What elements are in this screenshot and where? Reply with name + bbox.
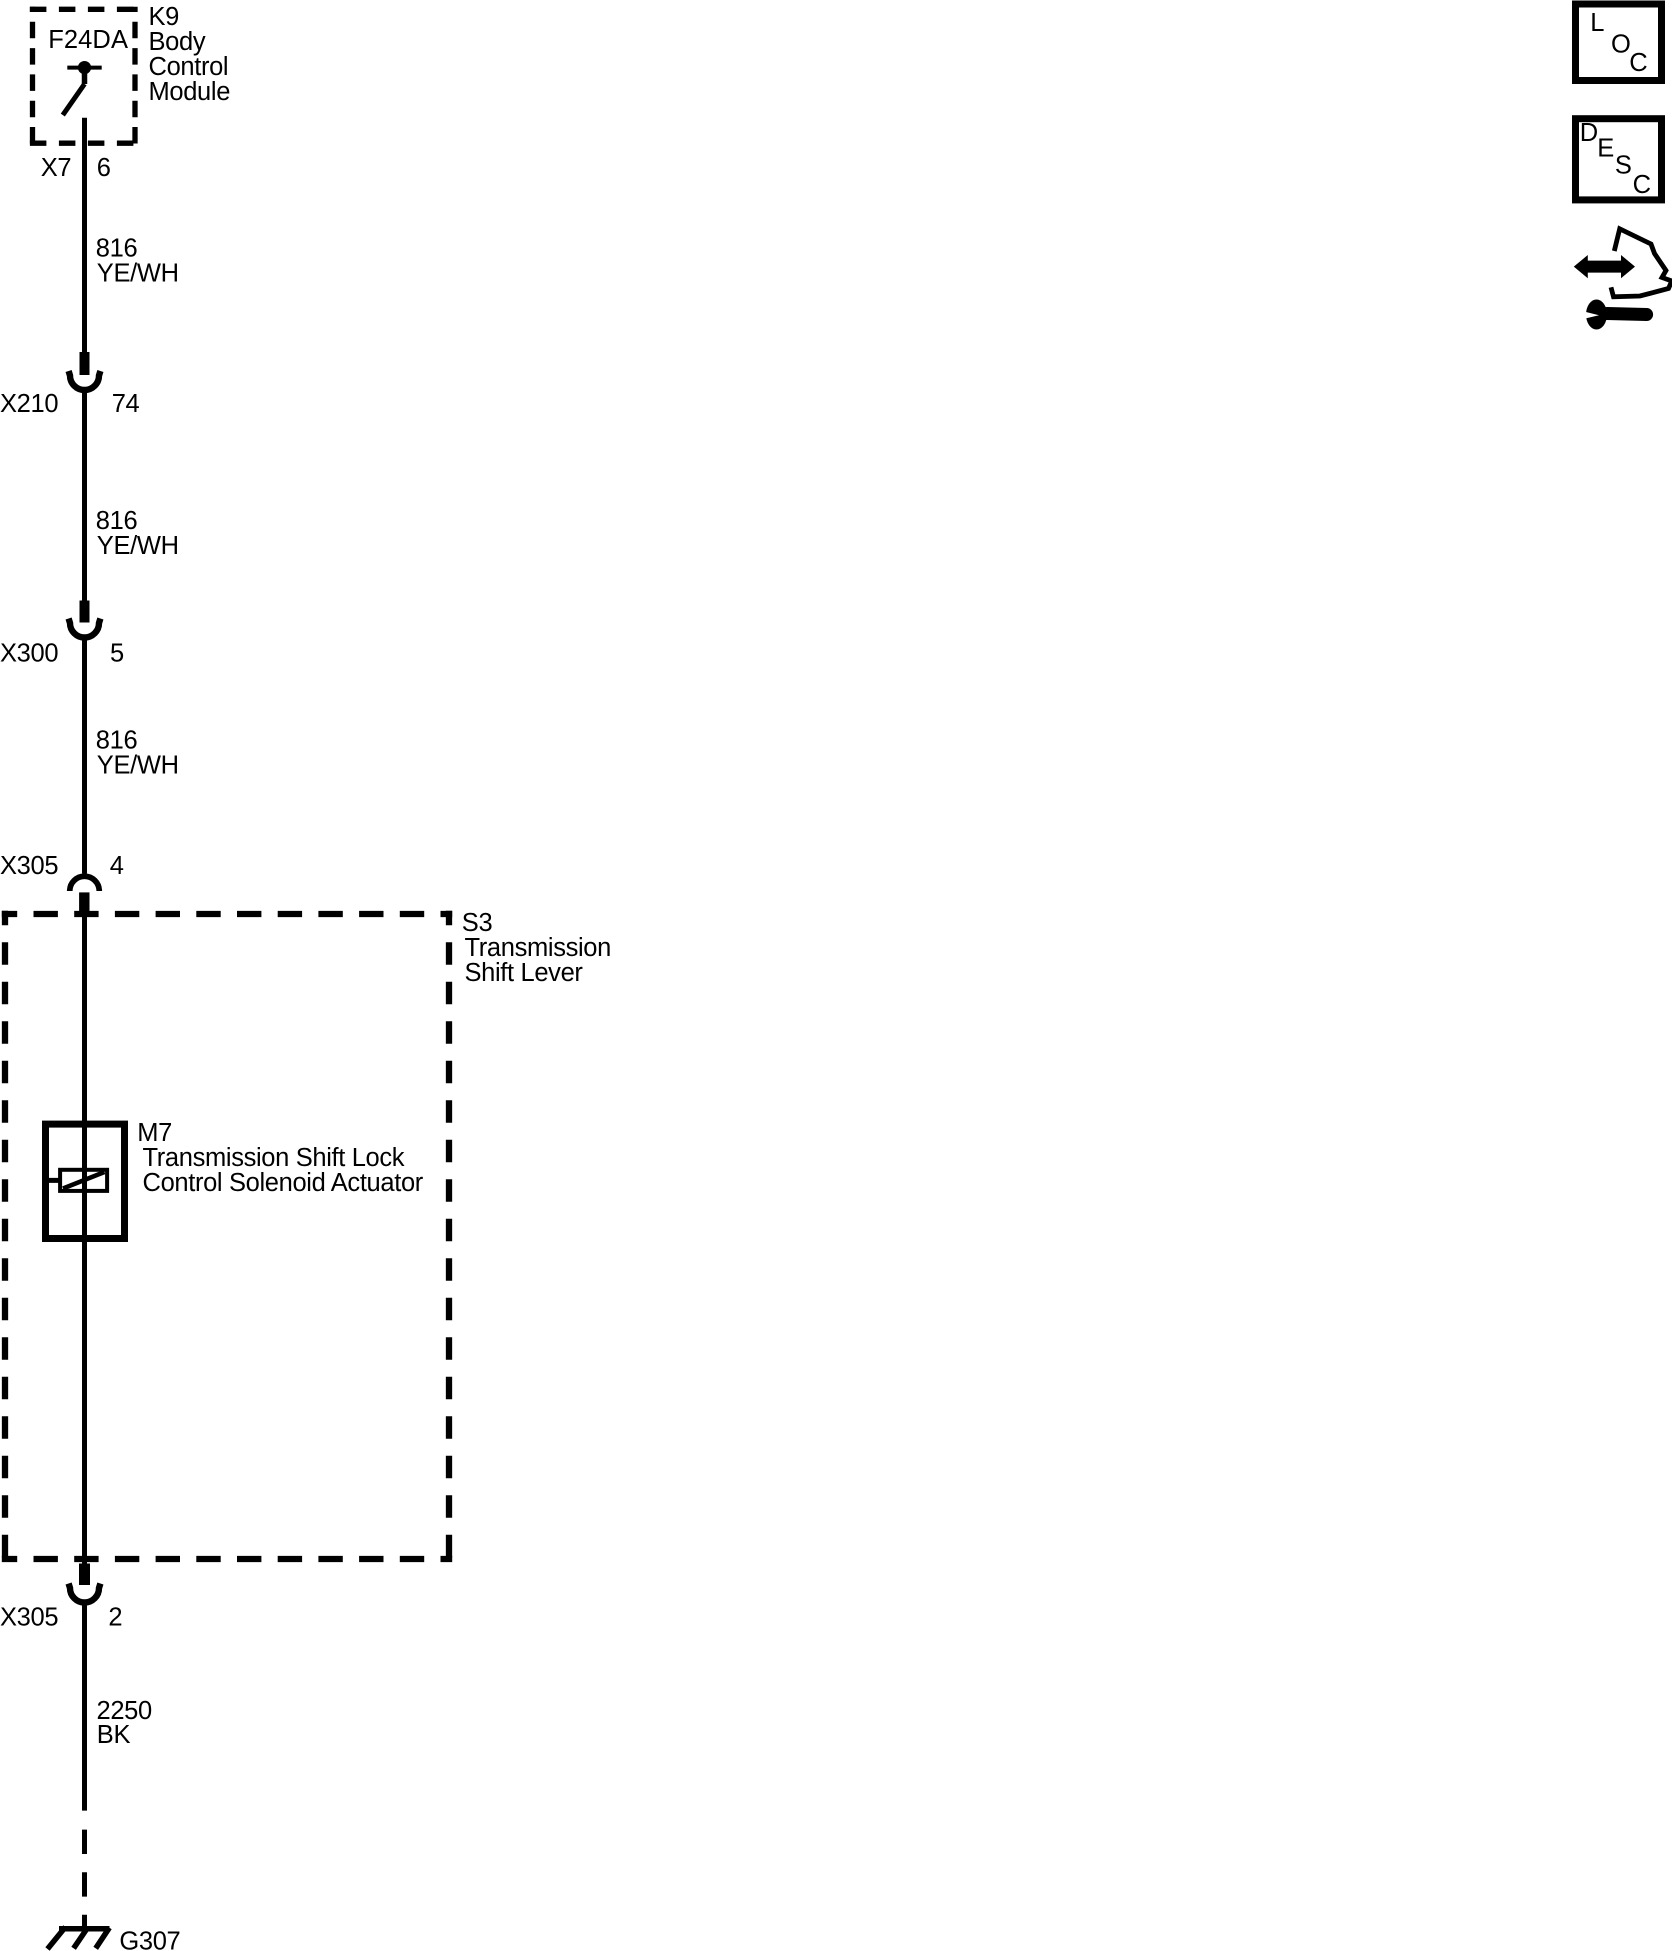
- svg-text:L: L: [1590, 9, 1604, 37]
- svg-text:2: 2: [108, 1604, 122, 1632]
- svg-text:4: 4: [110, 852, 124, 880]
- svg-text:YE/WH: YE/WH: [97, 260, 179, 288]
- svg-text:X305: X305: [0, 1604, 58, 1632]
- svg-text:YE/WH: YE/WH: [97, 532, 179, 560]
- svg-text:Transmission Shift Lock: Transmission Shift Lock: [143, 1144, 405, 1172]
- svg-text:S: S: [1615, 151, 1632, 179]
- svg-text:Module: Module: [149, 78, 231, 106]
- svg-text:G307: G307: [119, 1928, 180, 1951]
- svg-text:Control: Control: [149, 53, 229, 81]
- svg-text:816: 816: [96, 235, 138, 263]
- svg-text:6: 6: [97, 154, 111, 182]
- svg-text:S3: S3: [462, 909, 493, 937]
- svg-text:X305: X305: [0, 852, 58, 880]
- svg-text:O: O: [1611, 31, 1631, 59]
- svg-text:M7: M7: [137, 1119, 172, 1147]
- svg-text:C: C: [1629, 49, 1647, 77]
- svg-text:816: 816: [96, 507, 138, 535]
- svg-text:E: E: [1597, 135, 1614, 163]
- svg-text:K9: K9: [149, 3, 180, 31]
- svg-text:Shift Lever: Shift Lever: [465, 959, 584, 987]
- svg-text:Body: Body: [149, 28, 206, 56]
- svg-text:X7: X7: [41, 154, 71, 182]
- svg-text:Transmission: Transmission: [465, 934, 611, 962]
- svg-text:BK: BK: [97, 1721, 131, 1749]
- svg-text:YE/WH: YE/WH: [97, 752, 179, 780]
- svg-text:X300: X300: [0, 639, 58, 667]
- svg-text:C: C: [1633, 171, 1651, 199]
- svg-text:816: 816: [96, 727, 138, 755]
- svg-text:Control Solenoid Actuator: Control Solenoid Actuator: [143, 1169, 424, 1197]
- svg-text:X210: X210: [0, 390, 58, 418]
- svg-text:D: D: [1580, 119, 1598, 147]
- svg-text:F24DA: F24DA: [48, 26, 128, 54]
- svg-text:74: 74: [112, 390, 140, 418]
- svg-text:5: 5: [110, 639, 124, 667]
